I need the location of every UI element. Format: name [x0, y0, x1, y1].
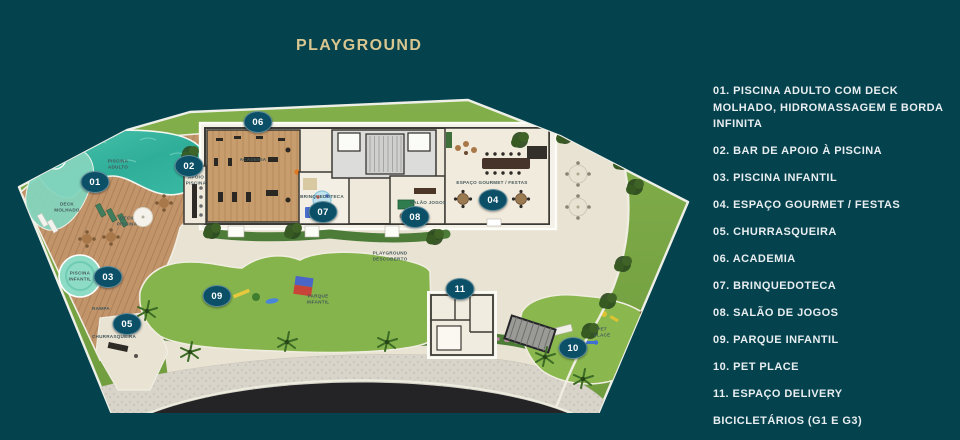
- plan-marker-01: 01: [81, 171, 110, 193]
- legend-item-05: 05. CHURRASQUEIRA: [713, 224, 953, 241]
- plan-label: ACADEMIA: [240, 157, 267, 163]
- plan-marker-07: 07: [309, 201, 338, 223]
- plan-label: SALÃO JOGOS: [410, 200, 446, 206]
- legend-item-09: 09. PARQUE INFANTIL: [713, 332, 953, 349]
- plan-label: RAMPA: [92, 306, 110, 312]
- legend-item-04: 04. ESPAÇO GOURMET / FESTAS: [713, 197, 953, 214]
- floor-plan: PISCINA ADULTODECK MOLHADODECK PISCINAPI…: [0, 0, 710, 435]
- hidromassagem: [44, 147, 66, 169]
- plan-label: ESPAÇO GOURMET / FESTAS: [456, 180, 527, 186]
- plan-marker-10: 10: [559, 337, 588, 359]
- legend-item-01: 01. PISCINA ADULTO COM DECK MOLHADO, HID…: [713, 83, 953, 133]
- floor-plan-illustration: [0, 0, 710, 435]
- gym-room: [207, 130, 300, 222]
- plan-marker-11: 11: [446, 278, 475, 300]
- plan-label: PISCINA ADULTO: [108, 158, 128, 169]
- plan-label: PARQUE INFANTIL: [307, 293, 330, 304]
- legend-item-08: 08. SALÃO DE JOGOS: [713, 305, 953, 322]
- legend-item-11: 11. ESPAÇO DELIVERY: [713, 386, 953, 403]
- plan-marker-02: 02: [175, 155, 204, 177]
- delivery-building: [428, 292, 496, 358]
- plan-marker-08: 08: [401, 206, 430, 228]
- plan-marker-06: 06: [244, 111, 273, 133]
- plan-marker-09: 09: [203, 285, 232, 307]
- plan-label: PET PLACE: [594, 326, 611, 337]
- legend-item-10: 10. PET PLACE: [713, 359, 953, 376]
- gourmet-room: [445, 128, 549, 226]
- plan-marker-03: 03: [94, 266, 123, 288]
- plan-marker-05: 05: [113, 313, 142, 335]
- legend-item-06: 06. ACADEMIA: [713, 251, 953, 268]
- plan-marker-04: 04: [479, 189, 508, 211]
- legend-footer: BICICLETÁRIOS (G1 E G3): [713, 413, 953, 430]
- plan-label: DECK PISCINA: [117, 215, 137, 226]
- page: PLAYGROUND: [0, 0, 960, 435]
- plan-label: DECK MOLHADO: [54, 201, 79, 212]
- plan-label: PISCINA INFANTIL: [69, 270, 92, 281]
- legend-item-07: 07. BRINQUEDOTECA: [713, 278, 953, 295]
- plan-label: BRINQUEDOTECA: [300, 194, 344, 200]
- plan-label: PLAYGROUND DESCOBERTO: [373, 250, 408, 261]
- elevator-core: [332, 130, 436, 178]
- legend: 01. PISCINA ADULTO COM DECK MOLHADO, HID…: [713, 83, 953, 440]
- bottom-crop-band: [0, 413, 710, 435]
- plan-label: CHURRASQUEIRA: [92, 334, 136, 340]
- legend-item-03: 03. PISCINA INFANTIL: [713, 170, 953, 187]
- legend-item-02: 02. BAR DE APOIO À PISCINA: [713, 143, 953, 160]
